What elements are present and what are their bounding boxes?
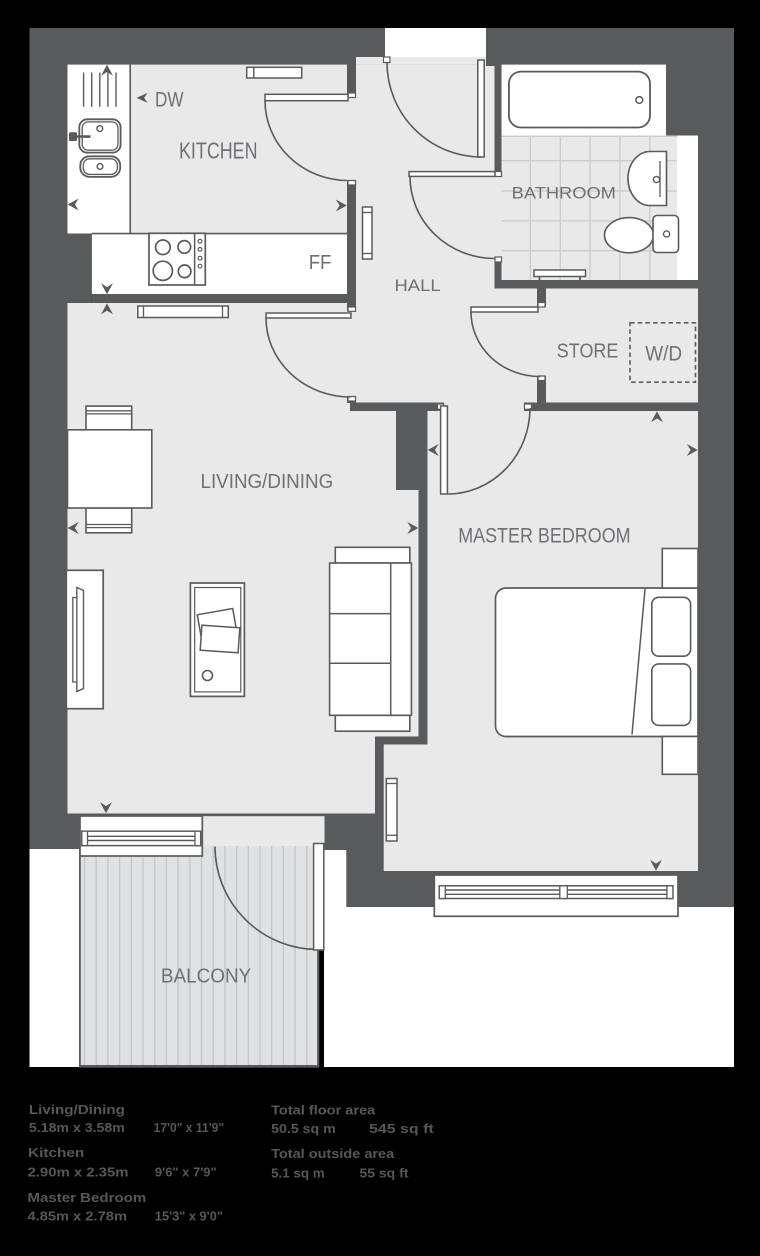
- svg-text:Living/Dining: Living/Dining: [29, 1102, 125, 1117]
- svg-text:FF: FF: [309, 252, 332, 274]
- svg-text:STORE: STORE: [557, 341, 619, 363]
- svg-text:HALL: HALL: [395, 276, 441, 295]
- svg-text:50.5 sq m: 50.5 sq m: [271, 1121, 336, 1136]
- svg-text:BALCONY: BALCONY: [161, 965, 252, 988]
- svg-text:KITCHEN: KITCHEN: [179, 138, 258, 164]
- svg-text:Master Bedroom: Master Bedroom: [28, 1190, 147, 1205]
- svg-text:MASTER BEDROOM: MASTER BEDROOM: [458, 523, 630, 547]
- svg-text:LIVING/DINING: LIVING/DINING: [201, 470, 334, 493]
- svg-text:Kitchen: Kitchen: [28, 1145, 84, 1160]
- svg-text:55 sq ft: 55 sq ft: [360, 1166, 410, 1181]
- svg-text:545 sq ft: 545 sq ft: [369, 1121, 435, 1136]
- svg-text:9'6" x 7'9": 9'6" x 7'9": [155, 1165, 217, 1180]
- svg-text:4.85m x 2.78m: 4.85m x 2.78m: [28, 1209, 128, 1224]
- svg-text:Total floor area: Total floor area: [271, 1102, 376, 1117]
- svg-text:17'0" x 11'9": 17'0" x 11'9": [154, 1120, 225, 1135]
- svg-text:5.18m x 3.58m: 5.18m x 3.58m: [29, 1120, 125, 1135]
- svg-text:BATHROOM: BATHROOM: [512, 183, 616, 202]
- svg-text:Total outside area: Total outside area: [271, 1146, 395, 1161]
- svg-text:15'3" x 9'0": 15'3" x 9'0": [155, 1209, 223, 1224]
- svg-text:W/D: W/D: [645, 343, 682, 366]
- svg-text:2.90m x 2.35m: 2.90m x 2.35m: [28, 1165, 129, 1180]
- svg-text:DW: DW: [155, 89, 184, 112]
- svg-text:5.1 sq m: 5.1 sq m: [271, 1166, 325, 1181]
